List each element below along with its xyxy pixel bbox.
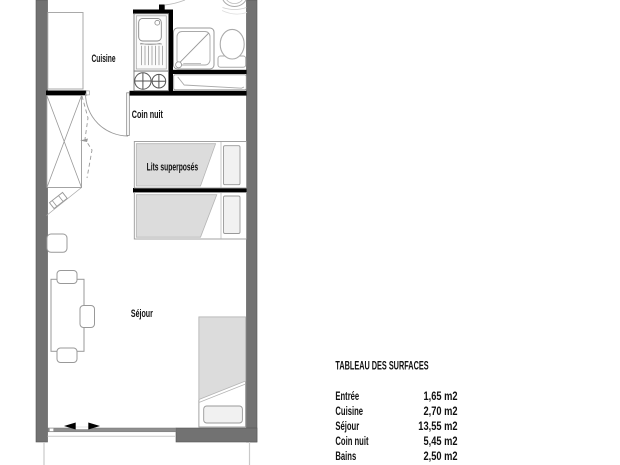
svg-text:Coin nuit: Coin nuit (132, 109, 163, 121)
svg-text:Séjour: Séjour (131, 307, 153, 320)
svg-text:1,65 m2: 1,65 m2 (423, 390, 457, 403)
svg-text:Bains: Bains (335, 451, 356, 464)
svg-text:Séjour: Séjour (335, 421, 359, 434)
svg-text:Coin nuit: Coin nuit (335, 436, 369, 449)
svg-text:5,45 m2: 5,45 m2 (423, 435, 457, 448)
svg-text:Cuisine: Cuisine (335, 406, 363, 419)
svg-text:2,70 m2: 2,70 m2 (423, 405, 457, 418)
svg-text:Cuisine: Cuisine (92, 52, 116, 64)
svg-text:Entrée: Entrée (335, 391, 359, 404)
svg-text:2,50 m2: 2,50 m2 (423, 450, 457, 463)
svg-text:Lits superposés: Lits superposés (147, 161, 199, 173)
svg-text:13,55 m2: 13,55 m2 (418, 420, 457, 433)
svg-text:TABLEAU DES SURFACES: TABLEAU DES SURFACES (335, 360, 429, 373)
